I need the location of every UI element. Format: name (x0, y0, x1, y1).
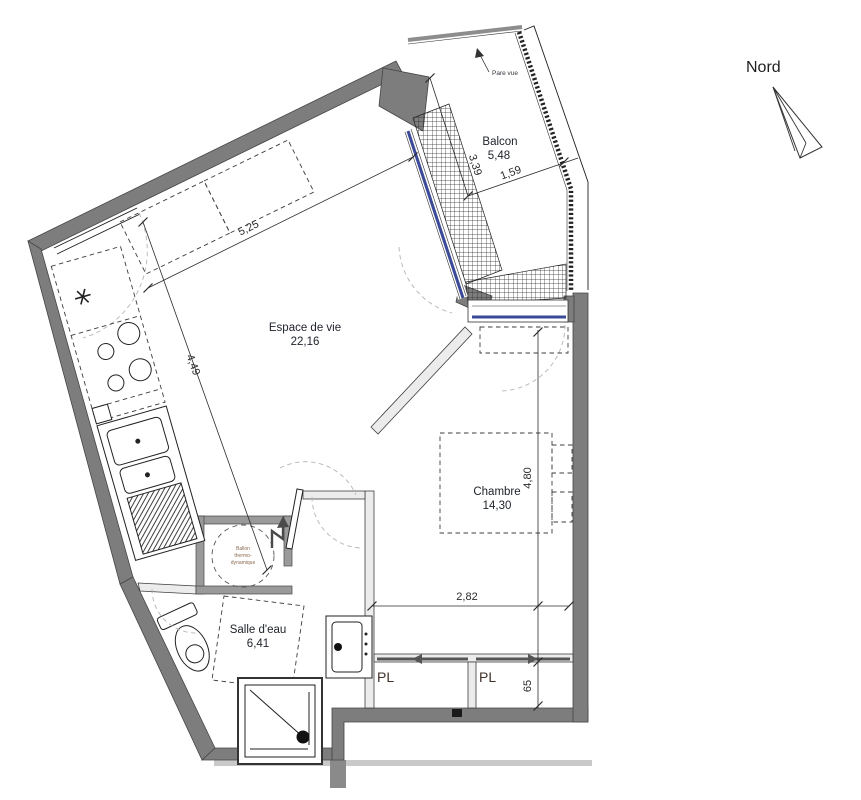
bedroom-window-swing-arc (499, 325, 565, 391)
window-swing-arc (83, 213, 147, 338)
water-heater-label-1: Ballon (236, 546, 250, 552)
dimension-label-living-width: 5,25 (236, 218, 261, 238)
living-furniture (120, 140, 452, 313)
pare-vue-label: Pare vue (492, 70, 518, 77)
arrow-icon (475, 48, 484, 58)
wall-stub (330, 760, 346, 788)
shower-drain-icon (297, 731, 310, 744)
room-label-living: Espace de vie (269, 322, 341, 334)
bay-window-swing-arc (399, 247, 452, 313)
bed-symbol (440, 433, 572, 533)
shower-symbol (238, 678, 322, 764)
burner-icon (106, 373, 126, 393)
kitchen-star-icon (73, 288, 92, 306)
floor-plan-page: Ballon thermo- dynamique (0, 0, 861, 800)
room-label-balcony: Balcon (482, 136, 517, 148)
north-arrow-icon: Nord (746, 59, 822, 158)
burner-icon (127, 356, 154, 383)
room-label-closet1: PL (377, 669, 394, 685)
bedroom-window (468, 300, 568, 391)
room-area-bathroom: 6,41 (247, 638, 269, 650)
water-heater-label-3: dynamique (231, 560, 256, 566)
room-label-bedroom: Chambre (473, 486, 520, 498)
dimension-label-bedroom-depth: 4,80 (522, 467, 534, 488)
dimension-label-living-depth: 4,49 (184, 353, 203, 377)
vanity-symbol (326, 616, 372, 678)
pare-vue-annotation: Pare vue (475, 48, 518, 77)
dimension-label-bedroom-width: 2,82 (456, 591, 477, 603)
room-area-balcony: 5,48 (488, 150, 510, 162)
dimension-label-closet-depth: 65 (522, 680, 534, 692)
balcony-railing (519, 32, 571, 291)
room-label-bathroom: Salle d'eau (230, 624, 287, 636)
dimension-label-balcony-width: 1,59 (499, 164, 523, 183)
burner-icon (96, 342, 116, 362)
burner-icon (115, 320, 142, 347)
water-heater-label-2: thermo- (234, 553, 252, 559)
entry-door-symbol (280, 462, 363, 549)
north-label: Nord (746, 59, 781, 76)
room-area-living: 22,16 (291, 336, 320, 348)
floor-plan-canvas: Ballon thermo- dynamique (0, 0, 861, 800)
room-area-bedroom: 14,30 (483, 500, 512, 512)
room-label-closet2: PL (479, 669, 496, 685)
